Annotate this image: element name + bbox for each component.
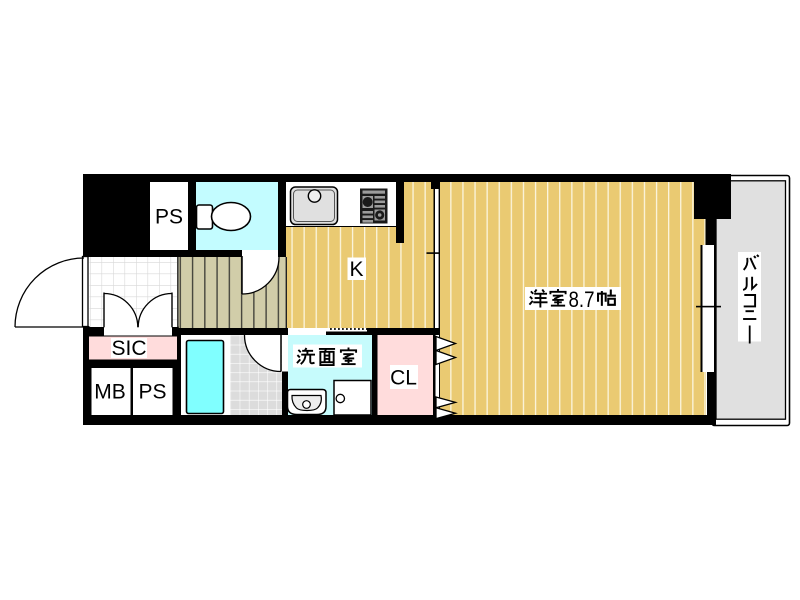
svg-text:K: K [349, 258, 363, 281]
svg-text:CL: CL [390, 367, 417, 390]
svg-text:SIC: SIC [111, 337, 146, 360]
svg-text:MB: MB [94, 381, 126, 404]
svg-text:PS: PS [138, 381, 166, 404]
svg-text:PS: PS [155, 206, 183, 229]
svg-text:8.7: 8.7 [569, 287, 595, 312]
